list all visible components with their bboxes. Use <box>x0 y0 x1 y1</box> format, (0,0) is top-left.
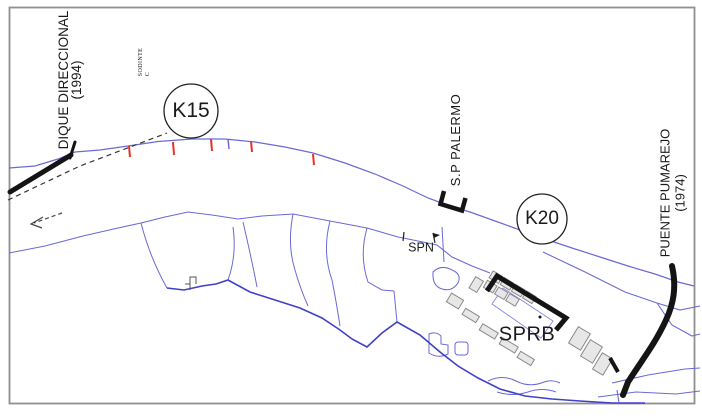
palermo-dock-icon <box>441 191 466 211</box>
sprb-label: SPRB <box>499 325 555 346</box>
sprb-dot <box>539 316 542 319</box>
pumarejo-year: (1974) <box>673 129 688 258</box>
east-bank-lines <box>598 368 700 403</box>
spn-label: SPN <box>408 241 434 254</box>
bank-tick-markers <box>129 139 314 165</box>
pumarejo-bridge-line <box>623 266 674 395</box>
sprb-port-complex <box>446 265 618 376</box>
palermo-label: S.P PALERMO <box>449 94 463 186</box>
pumarejo-name: PUENTE PUMAREJO <box>659 129 674 258</box>
sodinte-line1: SODINTE <box>138 48 145 76</box>
flow-arrow-icon <box>31 213 62 228</box>
k20-marker-label: K20 <box>525 209 559 229</box>
sodinte-line2: C <box>145 48 152 76</box>
south-channels <box>141 214 560 395</box>
east-terminal-buildings <box>563 327 617 376</box>
sodinte-label: SODINTE C <box>138 48 152 76</box>
river-south-bank <box>9 212 700 336</box>
map-artwork <box>0 0 702 416</box>
east-terminal-pier <box>610 358 618 372</box>
k15-marker-label: K15 <box>172 100 209 122</box>
sprb-warehouses <box>446 265 536 366</box>
dique-direccional-year: (1994) <box>70 11 83 150</box>
dique-direccional-label: DIQUE DIRECCIONAL (1994) <box>57 11 83 150</box>
pumarejo-bridge-label: PUENTE PUMAREJO (1974) <box>659 129 688 258</box>
navigation-map: DIQUE DIRECCIONAL (1994) SODINTE C K15 K… <box>0 0 702 416</box>
river-north-bank <box>9 139 694 286</box>
